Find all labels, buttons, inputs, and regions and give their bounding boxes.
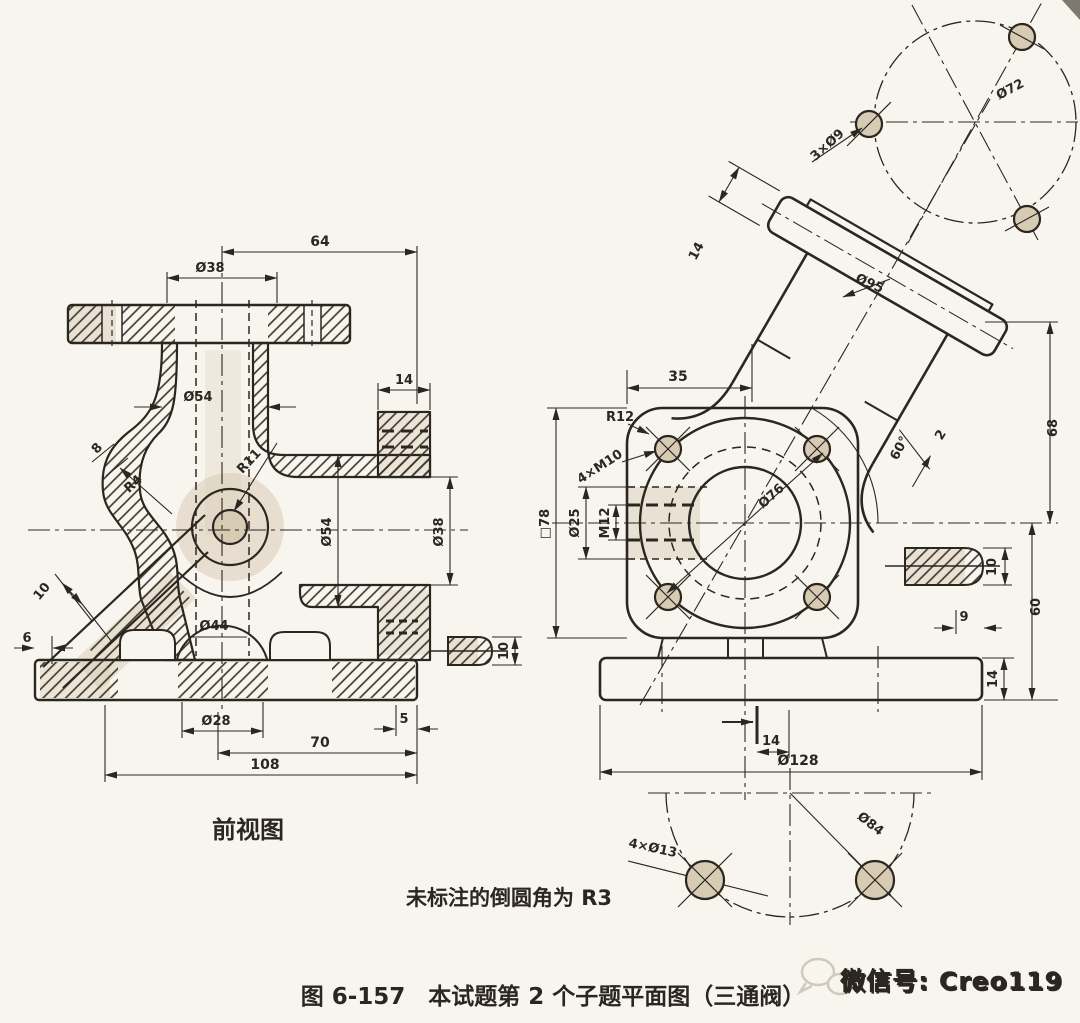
dim-front-hub-28: Ø28 <box>201 714 230 729</box>
dim-front-port-54: Ø54 <box>320 517 335 546</box>
dim-side-offset-35: 35 <box>668 369 687 385</box>
dim-front-port-38: Ø38 <box>432 517 447 546</box>
dim-front-rib-6: 6 <box>22 631 31 646</box>
dim-front-bore-38: Ø38 <box>195 261 224 276</box>
dim-side-flange-95: Ø95 <box>853 271 886 297</box>
dim-side-inset-9: 9 <box>959 610 968 625</box>
bottom-bolt-circle-detail: 4×Ø13 Ø84 <box>627 768 935 925</box>
figure-caption: 图 6-157 本试题第 2 个子题平面图（三通阀） <box>301 983 806 1010</box>
dim-side-flange-14: 14 <box>686 240 708 263</box>
dim-side-port-25: Ø25 <box>568 508 583 537</box>
center-bore-circle <box>213 510 247 544</box>
dim-front-span-64: 64 <box>310 234 330 250</box>
dim-front-flange-14: 14 <box>395 373 413 388</box>
dim-front-span-108: 108 <box>250 757 279 773</box>
fillet-note: 未标注的倒圆角为 R3 <box>406 886 612 910</box>
dim-front-span-70: 70 <box>310 735 330 751</box>
dim-side-offset-14: 14 <box>762 734 780 749</box>
dim-side-angle-60: 60° <box>888 434 913 463</box>
dim-side-r12: R12 <box>606 410 634 425</box>
dim-boss-10: 10 <box>497 642 512 660</box>
watermark: 微信号: Creo119 微信号: Creo119 <box>800 959 1064 997</box>
boss-detail-section: 10 <box>430 637 522 665</box>
dim-front-step-5: 5 <box>399 712 408 727</box>
dim-side-step-2: 2 <box>932 427 950 443</box>
dim-front-wall-8: 8 <box>89 440 106 457</box>
dim-side-square-78: □78 <box>538 509 553 539</box>
dim-front-rib-10: 10 <box>31 580 54 604</box>
rib-detail-section <box>885 548 1000 585</box>
dim-top-holes-3x9: 3×Ø9 <box>808 126 848 164</box>
dim-side-spigot-76: Ø76 <box>756 481 788 512</box>
side-view: 14 Ø95 35 R12 4×M10 □78 Ø25 M12 Ø76 60° … <box>538 99 1061 800</box>
dim-bottom-circle-84: Ø84 <box>854 809 886 839</box>
dim-side-height-60: 60 <box>1029 598 1044 616</box>
scan-corner-artifact <box>1062 0 1080 20</box>
dim-side-bolts-4xm10: 4×M10 <box>575 447 626 487</box>
front-view: 64 Ø38 Ø54 14 R11 R4 8 10 6 Ø44 Ø28 5 70… <box>14 234 468 784</box>
watermark-text: 微信号: Creo119 <box>839 967 1063 996</box>
top-bolt-circle-detail: 3×Ø9 Ø72 <box>808 2 1078 243</box>
dim-bottom-holes-4x13: 4×Ø13 <box>627 836 678 861</box>
dim-side-rib-10: 10 <box>985 558 1000 576</box>
dim-side-base-14: 14 <box>986 670 1001 688</box>
dim-side-height-68: 68 <box>1046 419 1061 437</box>
scanned-drawing-page: 64 Ø38 Ø54 14 R11 R4 8 10 6 Ø44 Ø28 5 70… <box>0 0 1080 1023</box>
foot-arch-left <box>120 630 175 660</box>
dim-front-bore-44: Ø44 <box>199 619 228 634</box>
pedestal-lines <box>658 638 827 658</box>
dim-side-thread-m12: M12 <box>598 507 613 538</box>
engineering-drawing: 64 Ø38 Ø54 14 R11 R4 8 10 6 Ø44 Ø28 5 70… <box>0 0 1080 1023</box>
front-view-label: 前视图 <box>212 816 284 844</box>
foot-arch-right <box>270 632 330 660</box>
dim-front-neck-54: Ø54 <box>183 390 212 405</box>
dim-side-base-128: Ø128 <box>777 753 818 769</box>
side-base-outline <box>600 658 982 700</box>
